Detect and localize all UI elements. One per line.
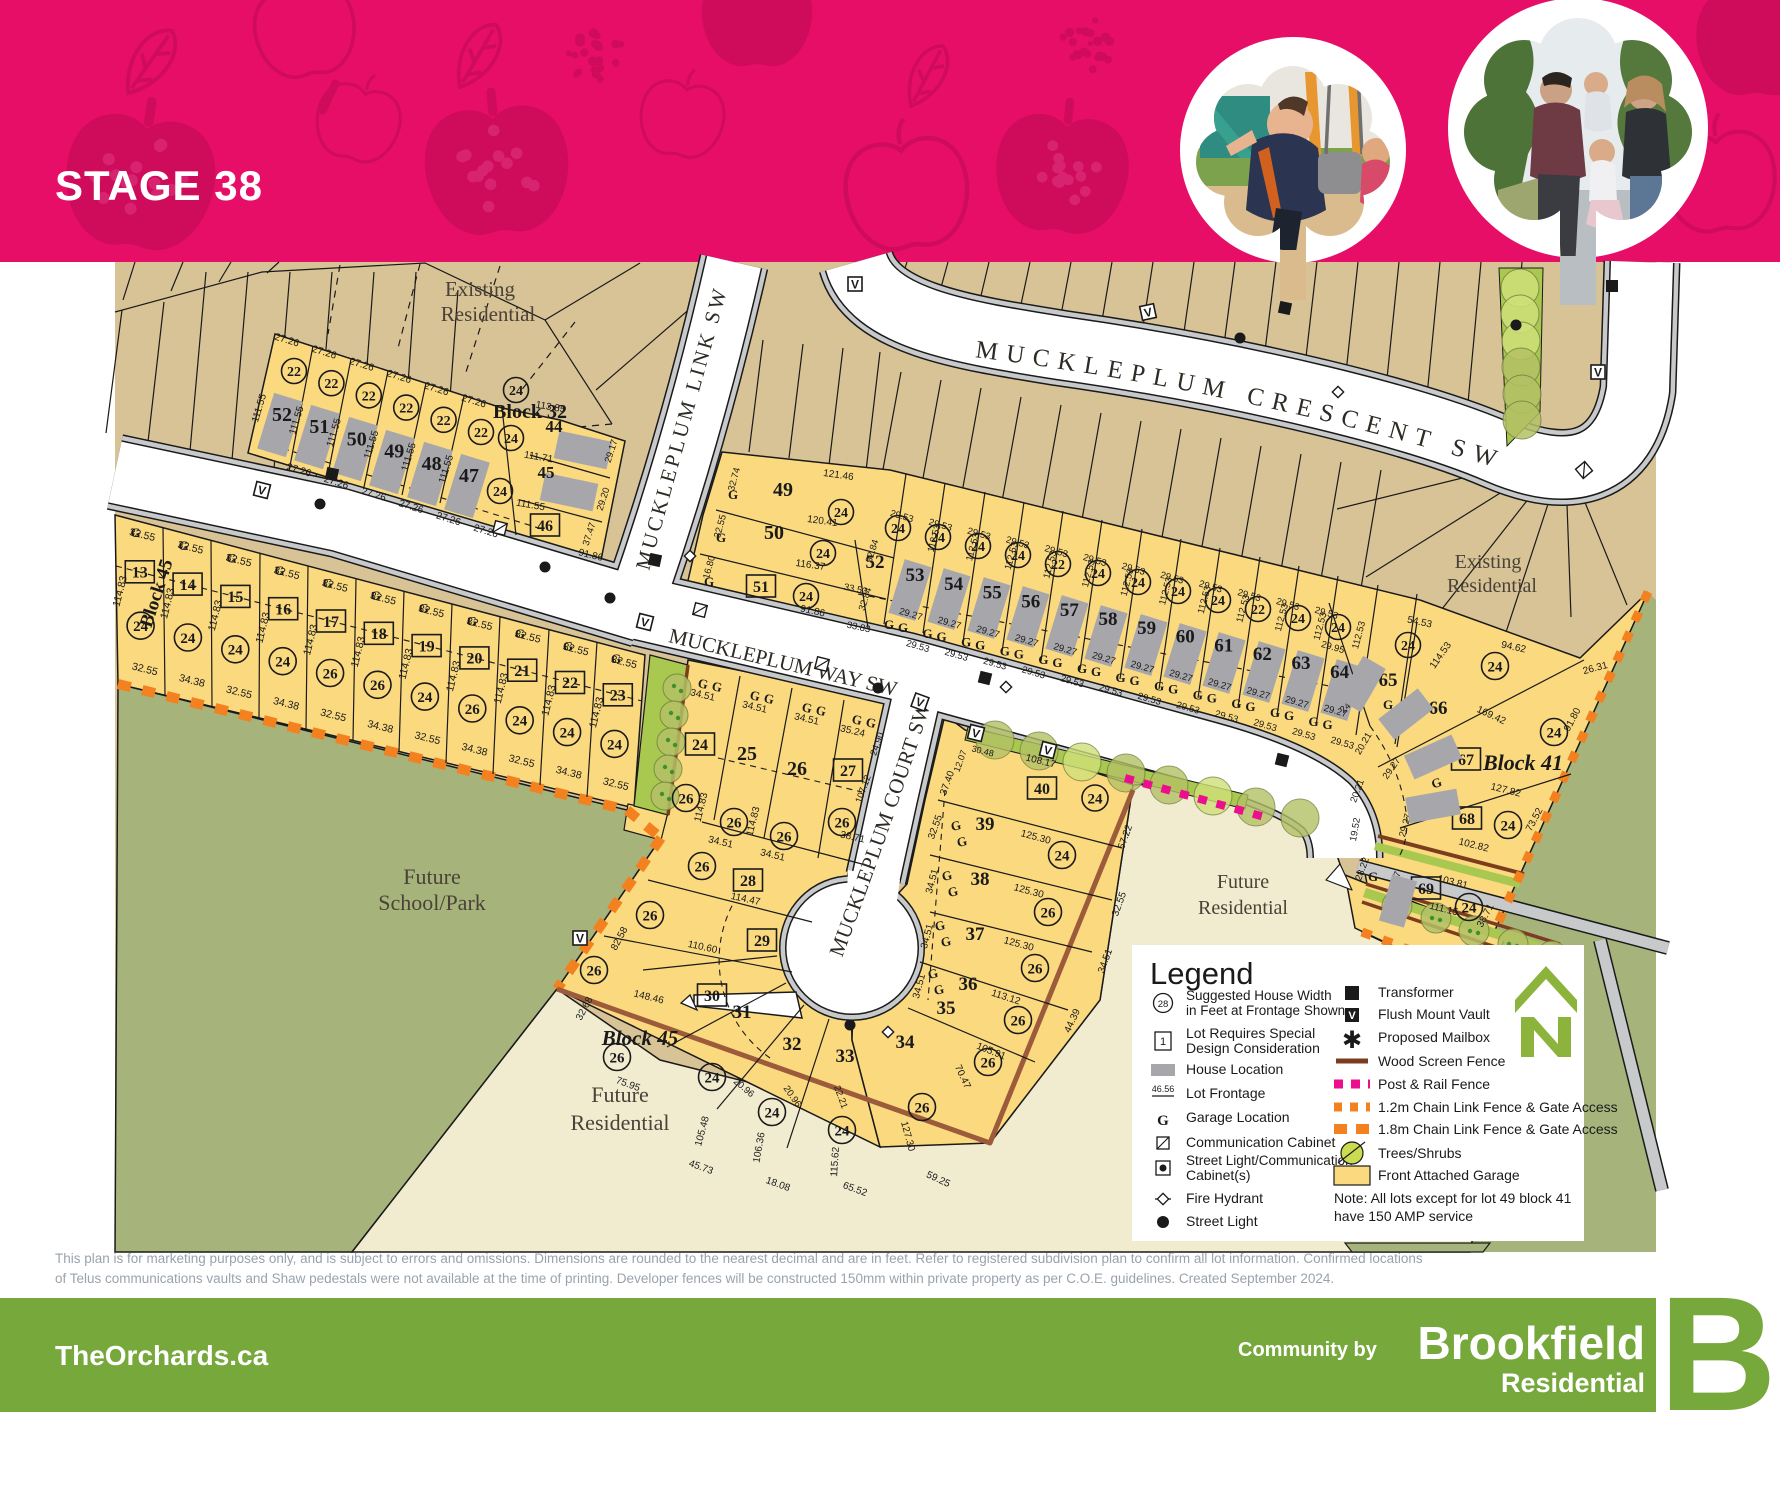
- svg-text:G: G: [728, 487, 738, 502]
- svg-text:Existing: Existing: [445, 277, 516, 301]
- svg-text:in Feet at Frontage Shown: in Feet at Frontage Shown: [1186, 1003, 1345, 1018]
- svg-text:24: 24: [891, 522, 905, 537]
- svg-text:24: 24: [971, 540, 985, 555]
- svg-text:15: 15: [227, 589, 243, 606]
- svg-text:64: 64: [1330, 662, 1350, 683]
- svg-text:38: 38: [971, 869, 990, 890]
- svg-text:35: 35: [937, 998, 956, 1019]
- svg-text:V: V: [1348, 1010, 1356, 1022]
- svg-text:24: 24: [512, 714, 528, 730]
- svg-text:67: 67: [1458, 752, 1474, 769]
- svg-text:1: 1: [1160, 1036, 1166, 1048]
- svg-text:24: 24: [765, 1105, 781, 1121]
- svg-text:24: 24: [1091, 567, 1105, 582]
- svg-text:have 150 AMP service: have 150 AMP service: [1334, 1208, 1473, 1224]
- svg-text:Wood Screen Fence: Wood Screen Fence: [1378, 1053, 1506, 1069]
- svg-text:24: 24: [275, 655, 291, 671]
- svg-text:Garage Location: Garage Location: [1186, 1109, 1290, 1125]
- svg-text:Note: All lots except for lot: Note: All lots except for lot 49 block 4…: [1334, 1190, 1572, 1206]
- svg-text:B: B: [1659, 1262, 1777, 1445]
- svg-text:18: 18: [371, 626, 387, 643]
- svg-text:22: 22: [287, 365, 301, 380]
- svg-text:20: 20: [466, 651, 482, 668]
- svg-text:17: 17: [323, 614, 339, 631]
- svg-text:36: 36: [959, 974, 978, 995]
- svg-text:22: 22: [362, 389, 376, 404]
- svg-text:Future: Future: [403, 864, 460, 889]
- svg-text:G: G: [1000, 643, 1010, 658]
- svg-text:49: 49: [773, 479, 793, 501]
- svg-text:26: 26: [323, 666, 339, 682]
- svg-text:G: G: [898, 620, 908, 635]
- svg-text:Community by: Community by: [1238, 1339, 1378, 1361]
- svg-text:56: 56: [1021, 591, 1040, 612]
- svg-text:Communication Cabinet: Communication Cabinet: [1186, 1134, 1336, 1150]
- svg-text:Trees/Shrubs: Trees/Shrubs: [1378, 1145, 1462, 1161]
- svg-text:Design Consideration: Design Consideration: [1186, 1040, 1320, 1056]
- svg-text:26: 26: [695, 859, 711, 875]
- svg-text:22: 22: [437, 414, 451, 429]
- svg-text:Residential: Residential: [1501, 1368, 1645, 1398]
- svg-text:of Telus communications vaults: of Telus communications vaults and Shaw …: [55, 1271, 1334, 1286]
- svg-text:Front Attached Garage: Front Attached Garage: [1378, 1167, 1520, 1183]
- svg-text:13: 13: [132, 565, 148, 582]
- svg-text:32: 32: [783, 1034, 802, 1055]
- svg-text:22: 22: [562, 675, 578, 692]
- svg-text:22: 22: [324, 377, 338, 392]
- svg-text:24: 24: [228, 643, 244, 659]
- svg-text:TheOrchards.ca: TheOrchards.ca: [55, 1340, 269, 1371]
- svg-text:24: 24: [180, 631, 196, 647]
- svg-text:24: 24: [504, 432, 518, 447]
- svg-text:24: 24: [417, 690, 433, 706]
- svg-text:1.8m Chain Link Fence & Gate A: 1.8m Chain Link Fence & Gate Access: [1378, 1121, 1618, 1137]
- svg-text:50: 50: [764, 522, 784, 544]
- svg-text:48: 48: [422, 453, 442, 475]
- svg-text:G: G: [716, 530, 726, 545]
- svg-text:24: 24: [560, 726, 576, 742]
- svg-text:26: 26: [679, 791, 695, 807]
- svg-text:Transformer: Transformer: [1378, 984, 1454, 1000]
- svg-text:26: 26: [777, 829, 793, 845]
- svg-text:Residential: Residential: [1198, 897, 1288, 919]
- svg-text:G: G: [1284, 708, 1294, 723]
- svg-text:24: 24: [509, 384, 523, 399]
- svg-text:28: 28: [1158, 999, 1169, 1010]
- svg-text:24: 24: [1291, 612, 1305, 627]
- svg-text:22: 22: [399, 402, 413, 417]
- svg-text:V: V: [851, 278, 859, 292]
- svg-text:G: G: [1270, 705, 1280, 720]
- svg-text:G: G: [563, 638, 573, 653]
- svg-text:Legend: Legend: [1150, 956, 1253, 991]
- svg-text:19: 19: [419, 638, 435, 655]
- svg-text:24: 24: [692, 737, 708, 754]
- svg-text:Existing: Existing: [1455, 551, 1522, 573]
- svg-text:Future: Future: [1217, 871, 1269, 893]
- svg-text:House Location: House Location: [1186, 1061, 1283, 1077]
- svg-text:24: 24: [1547, 725, 1563, 741]
- svg-text:G: G: [1130, 673, 1140, 688]
- svg-text:This plan is for marketing pur: This plan is for marketing purposes only…: [55, 1251, 1423, 1266]
- svg-text:G: G: [1038, 652, 1048, 667]
- svg-text:G: G: [275, 563, 285, 578]
- svg-text:44: 44: [546, 417, 564, 436]
- svg-text:G: G: [884, 617, 894, 632]
- svg-text:40: 40: [1034, 781, 1050, 798]
- svg-text:Brookfield: Brookfield: [1418, 1317, 1645, 1369]
- svg-text:26: 26: [1041, 905, 1057, 921]
- svg-text:G: G: [1168, 682, 1178, 697]
- svg-text:24: 24: [1211, 594, 1225, 609]
- svg-text:School/Park: School/Park: [378, 890, 486, 915]
- svg-text:14: 14: [180, 577, 196, 594]
- svg-text:52: 52: [272, 404, 292, 426]
- svg-text:26: 26: [587, 963, 603, 979]
- svg-text:34: 34: [896, 1032, 916, 1053]
- svg-text:G: G: [1052, 655, 1062, 670]
- svg-text:G: G: [1091, 664, 1101, 679]
- svg-text:Post & Rail Fence: Post & Rail Fence: [1378, 1076, 1490, 1092]
- svg-text:Flush Mount Vault: Flush Mount Vault: [1378, 1006, 1490, 1022]
- svg-text:G: G: [1207, 690, 1217, 705]
- svg-text:Cabinet(s): Cabinet(s): [1186, 1167, 1251, 1183]
- svg-text:G: G: [467, 613, 477, 628]
- svg-text:G: G: [961, 635, 971, 650]
- svg-text:39: 39: [976, 814, 995, 835]
- svg-text:21: 21: [514, 663, 530, 680]
- svg-text:24: 24: [1088, 791, 1104, 807]
- svg-text:49: 49: [384, 441, 404, 463]
- svg-text:✱: ✱: [1342, 1027, 1362, 1054]
- svg-text:26: 26: [370, 678, 386, 694]
- svg-text:33: 33: [836, 1046, 855, 1067]
- svg-text:G: G: [227, 550, 237, 565]
- svg-text:G: G: [1245, 699, 1255, 714]
- svg-text:53: 53: [906, 565, 925, 586]
- svg-text:G: G: [1193, 687, 1203, 702]
- svg-text:G: G: [1323, 717, 1333, 732]
- svg-text:G: G: [1309, 714, 1319, 729]
- svg-text:24: 24: [705, 1070, 721, 1086]
- svg-text:25: 25: [737, 743, 757, 765]
- svg-text:Lot Frontage: Lot Frontage: [1186, 1085, 1266, 1101]
- svg-text:28: 28: [740, 873, 756, 890]
- svg-text:62: 62: [1253, 644, 1272, 665]
- svg-text:G: G: [515, 626, 525, 641]
- svg-text:G: G: [1077, 661, 1087, 676]
- svg-text:29: 29: [754, 933, 770, 950]
- svg-text:52: 52: [866, 552, 885, 573]
- svg-text:26: 26: [1011, 1013, 1027, 1029]
- svg-text:Residential: Residential: [1447, 575, 1537, 597]
- svg-text:24: 24: [1462, 900, 1478, 916]
- svg-text:37: 37: [966, 924, 986, 945]
- svg-text:Fire Hydrant: Fire Hydrant: [1186, 1190, 1263, 1206]
- svg-text:68: 68: [1459, 811, 1475, 828]
- svg-text:57: 57: [1060, 600, 1080, 621]
- svg-text:58: 58: [1099, 609, 1118, 630]
- svg-text:V: V: [1594, 366, 1602, 380]
- svg-text:G: G: [937, 629, 947, 644]
- svg-text:63: 63: [1292, 653, 1311, 674]
- svg-text:24: 24: [1171, 585, 1185, 600]
- svg-text:26: 26: [643, 908, 659, 924]
- svg-text:22: 22: [1051, 558, 1065, 573]
- svg-text:Lot Requires Special: Lot Requires Special: [1186, 1025, 1315, 1041]
- svg-text:45: 45: [538, 463, 555, 482]
- svg-text:24: 24: [1488, 659, 1504, 675]
- svg-text:59: 59: [1137, 618, 1156, 639]
- svg-text:51: 51: [309, 416, 329, 438]
- svg-text:G: G: [1014, 646, 1024, 661]
- svg-text:51: 51: [753, 579, 769, 596]
- svg-text:G: G: [1157, 1113, 1169, 1129]
- svg-text:24: 24: [1131, 576, 1145, 591]
- svg-text:24: 24: [1011, 549, 1025, 564]
- svg-text:24: 24: [931, 531, 945, 546]
- svg-text:30: 30: [704, 988, 720, 1005]
- svg-text:V: V: [576, 932, 584, 946]
- svg-text:26: 26: [1028, 961, 1044, 977]
- svg-text:54: 54: [944, 574, 964, 595]
- svg-text:27: 27: [840, 763, 856, 780]
- svg-text:24: 24: [1055, 848, 1071, 864]
- svg-text:Street Light/Communication: Street Light/Communication: [1186, 1153, 1353, 1168]
- svg-text:G: G: [704, 574, 714, 589]
- svg-text:26: 26: [465, 702, 481, 718]
- svg-text:Residential: Residential: [441, 302, 536, 326]
- svg-text:Block 45: Block 45: [601, 1026, 678, 1050]
- svg-text:24: 24: [493, 485, 507, 500]
- svg-text:G: G: [923, 626, 933, 641]
- svg-text:26: 26: [610, 1050, 626, 1066]
- svg-text:47: 47: [459, 465, 479, 487]
- svg-text:G: G: [419, 601, 429, 616]
- svg-text:Residential: Residential: [571, 1110, 670, 1135]
- svg-text:Block 41: Block 41: [1482, 750, 1563, 775]
- svg-text:G: G: [178, 538, 188, 553]
- svg-text:STAGE 38: STAGE 38: [55, 162, 263, 209]
- svg-text:46.56: 46.56: [1152, 1084, 1175, 1094]
- svg-text:G: G: [1154, 679, 1164, 694]
- svg-text:60: 60: [1176, 627, 1195, 648]
- svg-text:G: G: [1231, 696, 1241, 711]
- svg-text:G: G: [371, 588, 381, 603]
- svg-text:G: G: [975, 638, 985, 653]
- svg-text:26: 26: [727, 815, 743, 831]
- svg-text:46: 46: [537, 518, 553, 535]
- svg-text:55: 55: [983, 583, 1002, 604]
- svg-text:G: G: [611, 651, 621, 666]
- svg-text:G: G: [1116, 670, 1126, 685]
- svg-text:23: 23: [610, 688, 626, 705]
- svg-text:31: 31: [733, 1002, 752, 1023]
- svg-text:Suggested House Width: Suggested House Width: [1186, 988, 1332, 1003]
- svg-text:24: 24: [816, 547, 830, 562]
- svg-text:22: 22: [1251, 603, 1265, 618]
- svg-text:Proposed Mailbox: Proposed Mailbox: [1378, 1029, 1490, 1045]
- svg-text:69: 69: [1418, 881, 1434, 898]
- svg-text:26: 26: [915, 1100, 931, 1116]
- svg-text:G: G: [130, 525, 140, 540]
- svg-text:16: 16: [275, 602, 291, 619]
- svg-text:1.2m Chain Link Fence & Gate A: 1.2m Chain Link Fence & Gate Access: [1378, 1099, 1618, 1115]
- svg-text:G: G: [1368, 869, 1378, 884]
- svg-text:26: 26: [787, 758, 807, 780]
- svg-text:115.62: 115.62: [829, 1146, 842, 1177]
- svg-text:24: 24: [1501, 818, 1517, 834]
- svg-text:24: 24: [607, 737, 623, 753]
- svg-text:50: 50: [347, 428, 367, 450]
- svg-text:Street Light: Street Light: [1186, 1213, 1258, 1229]
- svg-text:22: 22: [474, 426, 488, 441]
- svg-text:G: G: [323, 576, 333, 591]
- svg-text:24: 24: [835, 1123, 851, 1139]
- svg-text:61: 61: [1214, 635, 1233, 656]
